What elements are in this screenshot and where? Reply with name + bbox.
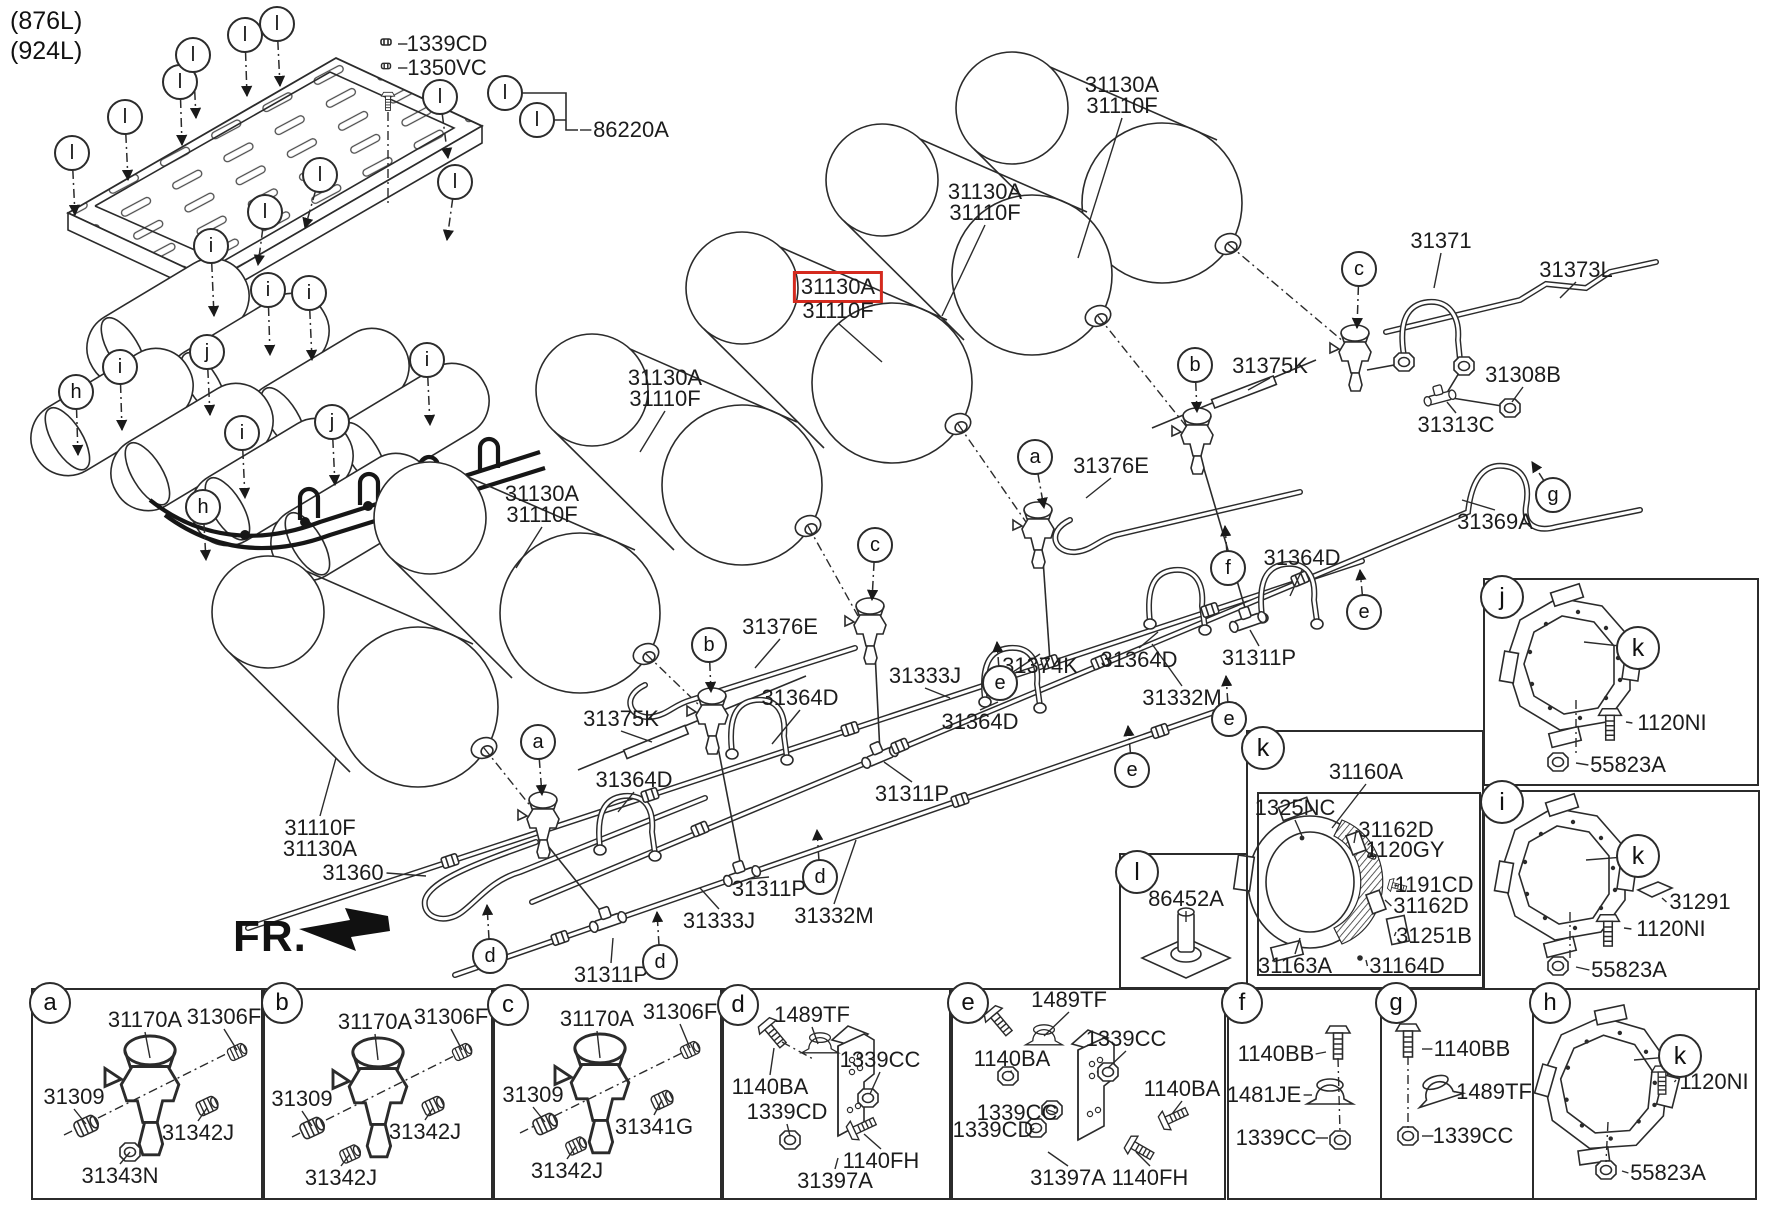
part-label-31311P: 31311P <box>875 781 949 807</box>
part-label-31309: 31309 <box>43 1084 104 1110</box>
callout-i: i <box>250 272 286 308</box>
callout-b: b <box>1177 347 1213 383</box>
callout-l: l <box>1115 850 1159 894</box>
part-label-31333J: 31333J <box>889 663 961 689</box>
parts-diagram-canvas: (876L) (924L) FR. 1339CD1350VC86220A3113… <box>0 0 1772 1211</box>
part-label-31375K: 31375K <box>583 706 659 732</box>
part-label-31313C: 31313C <box>1417 412 1494 438</box>
part-label-55823A: 55823A <box>1591 957 1667 983</box>
part-label-31306F: 31306F <box>414 1004 489 1030</box>
part-label-31170A: 31170A <box>338 1009 412 1035</box>
part-label-1339CD: 1339CD <box>407 31 488 57</box>
part-label-31397A: 31397A <box>797 1168 873 1194</box>
part-label-31110F: 31110F <box>1086 93 1157 119</box>
part-label-31376E: 31376E <box>742 614 818 640</box>
callout-i: i <box>409 342 445 378</box>
part-label-31170A: 31170A <box>560 1006 634 1032</box>
part-label-31371: 31371 <box>1410 228 1471 254</box>
part-label-1339CD: 1339CD <box>953 1117 1034 1143</box>
callout-k: k <box>1616 626 1660 670</box>
part-label-86220A: 86220A <box>593 117 669 143</box>
part-label-31311P: 31311P <box>574 962 648 988</box>
callout-i: i <box>291 275 327 311</box>
callout-e: e <box>982 665 1018 701</box>
callout-l: l <box>227 17 263 53</box>
callout-h: h <box>58 374 94 410</box>
part-label-31342J: 31342J <box>162 1120 234 1146</box>
callout-k: k <box>1616 834 1660 878</box>
part-label-31164D: 31164D <box>1369 953 1444 979</box>
part-label-31360: 31360 <box>322 860 383 886</box>
part-label-55823A: 55823A <box>1590 752 1666 778</box>
callout-c: c <box>487 984 529 1026</box>
part-label-1120GY: 1120GY <box>1365 837 1444 863</box>
variant-line-1: (876L) <box>10 6 82 36</box>
part-label-1339CC: 1339CC <box>1086 1026 1167 1052</box>
callout-h: h <box>1529 982 1571 1024</box>
part-label-31364D: 31364D <box>941 709 1018 735</box>
part-label-31251B: 31251B <box>1396 923 1472 949</box>
callout-l: l <box>302 157 338 193</box>
part-label-31311P: 31311P <box>732 876 806 902</box>
part-label-1339CC: 1339CC <box>1236 1125 1317 1151</box>
part-label-31332M: 31332M <box>1142 685 1222 711</box>
callout-l: l <box>519 102 555 138</box>
part-label-31369A: 31369A <box>1457 509 1533 535</box>
part-label-1489TF: 1489TF <box>1456 1079 1532 1105</box>
part-label-31110F: 31110F <box>506 502 577 528</box>
callout-a: a <box>520 724 556 760</box>
part-label-31110F: 31110F <box>802 298 873 324</box>
callout-i: i <box>224 415 260 451</box>
part-label-1140BB: 1140BB <box>1238 1041 1315 1067</box>
callout-f: f <box>1210 550 1246 586</box>
callout-j: j <box>1480 575 1524 619</box>
callout-b: b <box>261 982 303 1024</box>
callout-a: a <box>1017 439 1053 475</box>
part-label-31162D: 31162D <box>1393 893 1468 919</box>
callout-c: c <box>1341 251 1377 287</box>
part-label-31308B: 31308B <box>1485 362 1561 388</box>
fr-label: FR. <box>233 912 307 962</box>
callout-e: e <box>1211 701 1247 737</box>
part-label-55823A: 55823A <box>1630 1160 1706 1186</box>
part-label-1120NI: 1120NI <box>1636 916 1705 942</box>
callout-d: d <box>802 859 838 895</box>
callout-g: g <box>1535 477 1571 513</box>
callout-c: c <box>857 527 893 563</box>
part-label-31364D: 31364D <box>1263 545 1340 571</box>
part-label-31342J: 31342J <box>305 1165 377 1191</box>
fr-direction-arrow-icon <box>299 908 390 951</box>
part-label-1481JE: 1481JE <box>1227 1082 1302 1108</box>
part-label-31375K: 31375K <box>1232 353 1308 379</box>
part-label-1339CC: 1339CC <box>840 1047 921 1073</box>
part-label-31306F: 31306F <box>187 1004 262 1030</box>
part-label-31397A: 31397A <box>1030 1165 1106 1191</box>
callout-f: f <box>1221 982 1263 1024</box>
callout-e: e <box>1114 752 1150 788</box>
callout-l: l <box>487 75 523 111</box>
part-label-31342J: 31342J <box>389 1119 461 1145</box>
callout-e: e <box>1346 594 1382 630</box>
part-label-31306F: 31306F <box>643 999 718 1025</box>
part-label-31291: 31291 <box>1669 889 1730 915</box>
part-label-1140BB: 1140BB <box>1434 1036 1511 1062</box>
part-label-31342J: 31342J <box>531 1158 603 1184</box>
part-label-1140BA: 1140BA <box>1144 1076 1221 1102</box>
callout-l: l <box>175 37 211 73</box>
variant-line-2: (924L) <box>10 36 82 66</box>
callout-d: d <box>717 984 759 1026</box>
callout-l: l <box>54 135 90 171</box>
floor-panel-drawing <box>68 58 482 298</box>
callout-d: d <box>472 938 508 974</box>
part-label-31309: 31309 <box>271 1086 332 1112</box>
part-label-31376E: 31376E <box>1073 453 1149 479</box>
callout-j: j <box>189 334 225 370</box>
part-label-31332M: 31332M <box>794 903 874 929</box>
callout-l: l <box>107 99 143 135</box>
part-label-31364D: 31364D <box>1100 647 1177 673</box>
callout-i: i <box>1480 780 1524 824</box>
part-label-31333J: 31333J <box>683 908 755 934</box>
part-label-31343N: 31343N <box>81 1163 158 1189</box>
variant-codes: (876L) (924L) <box>10 6 82 66</box>
callout-e: e <box>947 982 989 1024</box>
part-label-31373L: 31373L <box>1539 257 1612 283</box>
part-label-31309: 31309 <box>502 1082 563 1108</box>
callout-h: h <box>185 489 221 525</box>
callout-k: k <box>1658 1034 1702 1078</box>
part-label-31130A: 31130A <box>283 836 357 862</box>
part-label-31163A: 31163A <box>1258 953 1332 979</box>
part-label-1350VC: 1350VC <box>407 55 487 81</box>
callout-j: j <box>314 404 350 440</box>
part-label-1140FH: 1140FH <box>1112 1165 1189 1191</box>
callout-l: l <box>259 6 295 42</box>
part-label-31364D: 31364D <box>761 685 838 711</box>
part-label-31341G: 31341G <box>615 1114 693 1140</box>
part-label-1339CD: 1339CD <box>747 1099 828 1125</box>
callout-a: a <box>29 982 71 1024</box>
callout-d: d <box>642 944 678 980</box>
part-label-1489TF: 1489TF <box>774 1002 850 1028</box>
part-label-31110F: 31110F <box>949 200 1020 226</box>
part-label-1140BA: 1140BA <box>974 1046 1051 1072</box>
part-label-31170A: 31170A <box>108 1007 182 1033</box>
part-label-1489TF: 1489TF <box>1031 987 1107 1013</box>
part-label-31311P: 31311P <box>1222 645 1296 671</box>
part-label-1325NC: 1325NC <box>1255 795 1336 821</box>
part-label-86452A: 86452A <box>1148 886 1224 912</box>
callout-b: b <box>691 627 727 663</box>
part-label-1120NI: 1120NI <box>1637 710 1706 736</box>
part-label-1140BA: 1140BA <box>732 1074 809 1100</box>
part-label-31364D: 31364D <box>595 767 672 793</box>
callout-l: l <box>422 79 458 115</box>
callout-i: i <box>193 228 229 264</box>
callout-g: g <box>1375 982 1417 1024</box>
part-label-31160A: 31160A <box>1329 759 1403 785</box>
part-label-1339CC: 1339CC <box>1433 1123 1514 1149</box>
callout-l: l <box>247 194 283 230</box>
callout-k: k <box>1241 726 1285 770</box>
part-label-31110F: 31110F <box>629 386 700 412</box>
callout-i: i <box>102 349 138 385</box>
callout-l: l <box>437 164 473 200</box>
